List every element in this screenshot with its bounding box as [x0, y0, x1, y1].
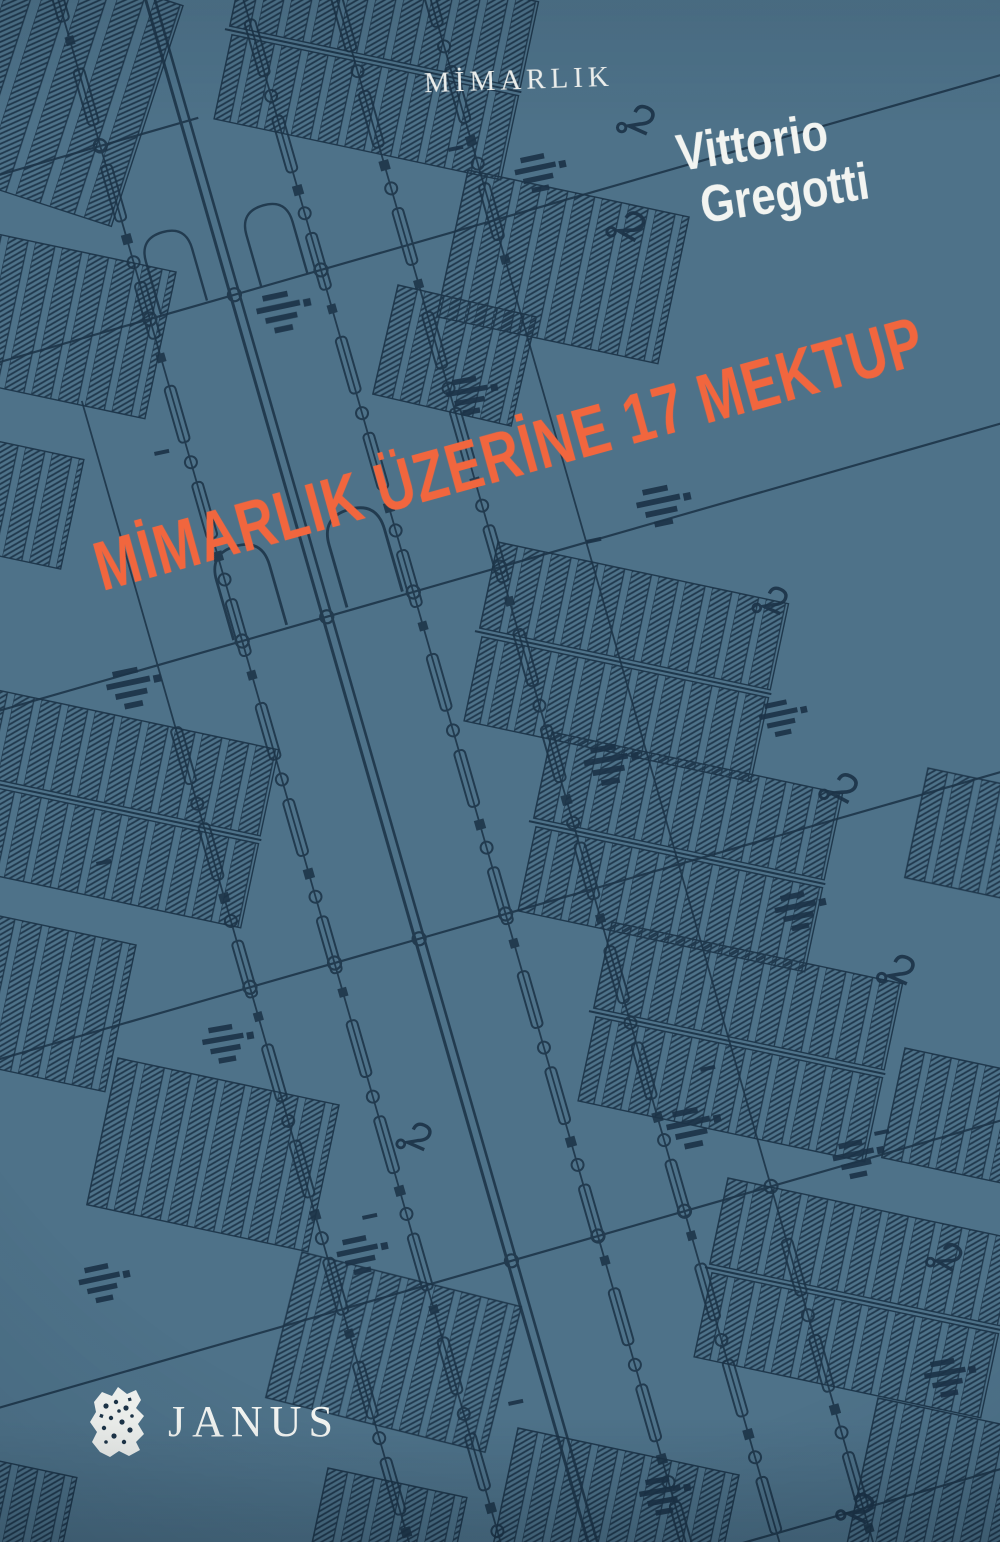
site-plan-background	[0, 0, 1000, 1542]
janus-emblem-icon	[86, 1384, 146, 1460]
publisher-name: JANUS	[168, 1385, 340, 1459]
book-cover: MİMARLIK Vittorio Gregotti MİMARLIK ÜZER…	[0, 0, 1000, 1542]
building-blocks-layer	[0, 0, 1000, 1542]
series-label: MİMARLIK	[423, 61, 614, 101]
publisher-lockup: JANUS	[86, 1384, 340, 1460]
